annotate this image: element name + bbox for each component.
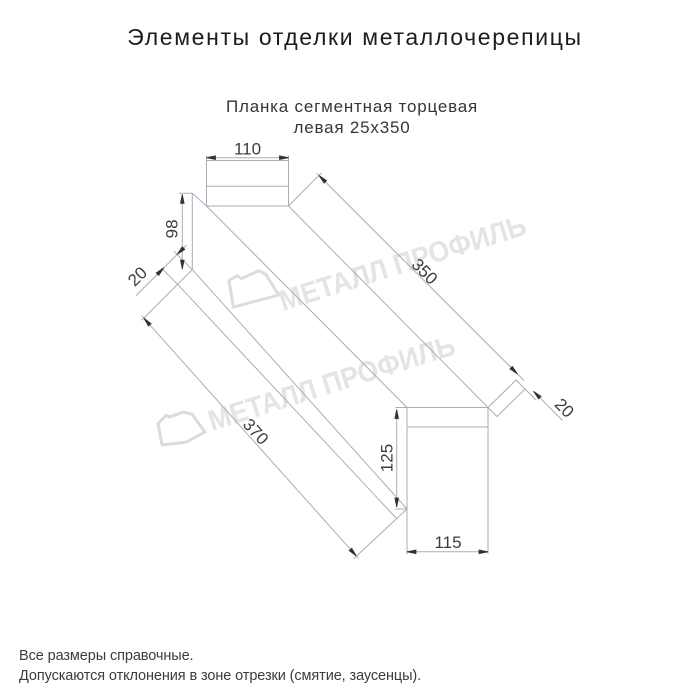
svg-text:МЕТАЛЛ ПРОФИЛЬ: МЕТАЛЛ ПРОФИЛЬ xyxy=(204,330,459,438)
svg-text:115: 115 xyxy=(434,533,461,552)
svg-text:110: 110 xyxy=(234,140,261,159)
svg-text:20: 20 xyxy=(551,395,578,422)
svg-text:98: 98 xyxy=(163,219,182,238)
svg-text:МЕТАЛЛ ПРОФИЛЬ: МЕТАЛЛ ПРОФИЛЬ xyxy=(275,210,530,318)
svg-text:125: 125 xyxy=(378,444,397,472)
svg-text:20: 20 xyxy=(124,263,151,290)
